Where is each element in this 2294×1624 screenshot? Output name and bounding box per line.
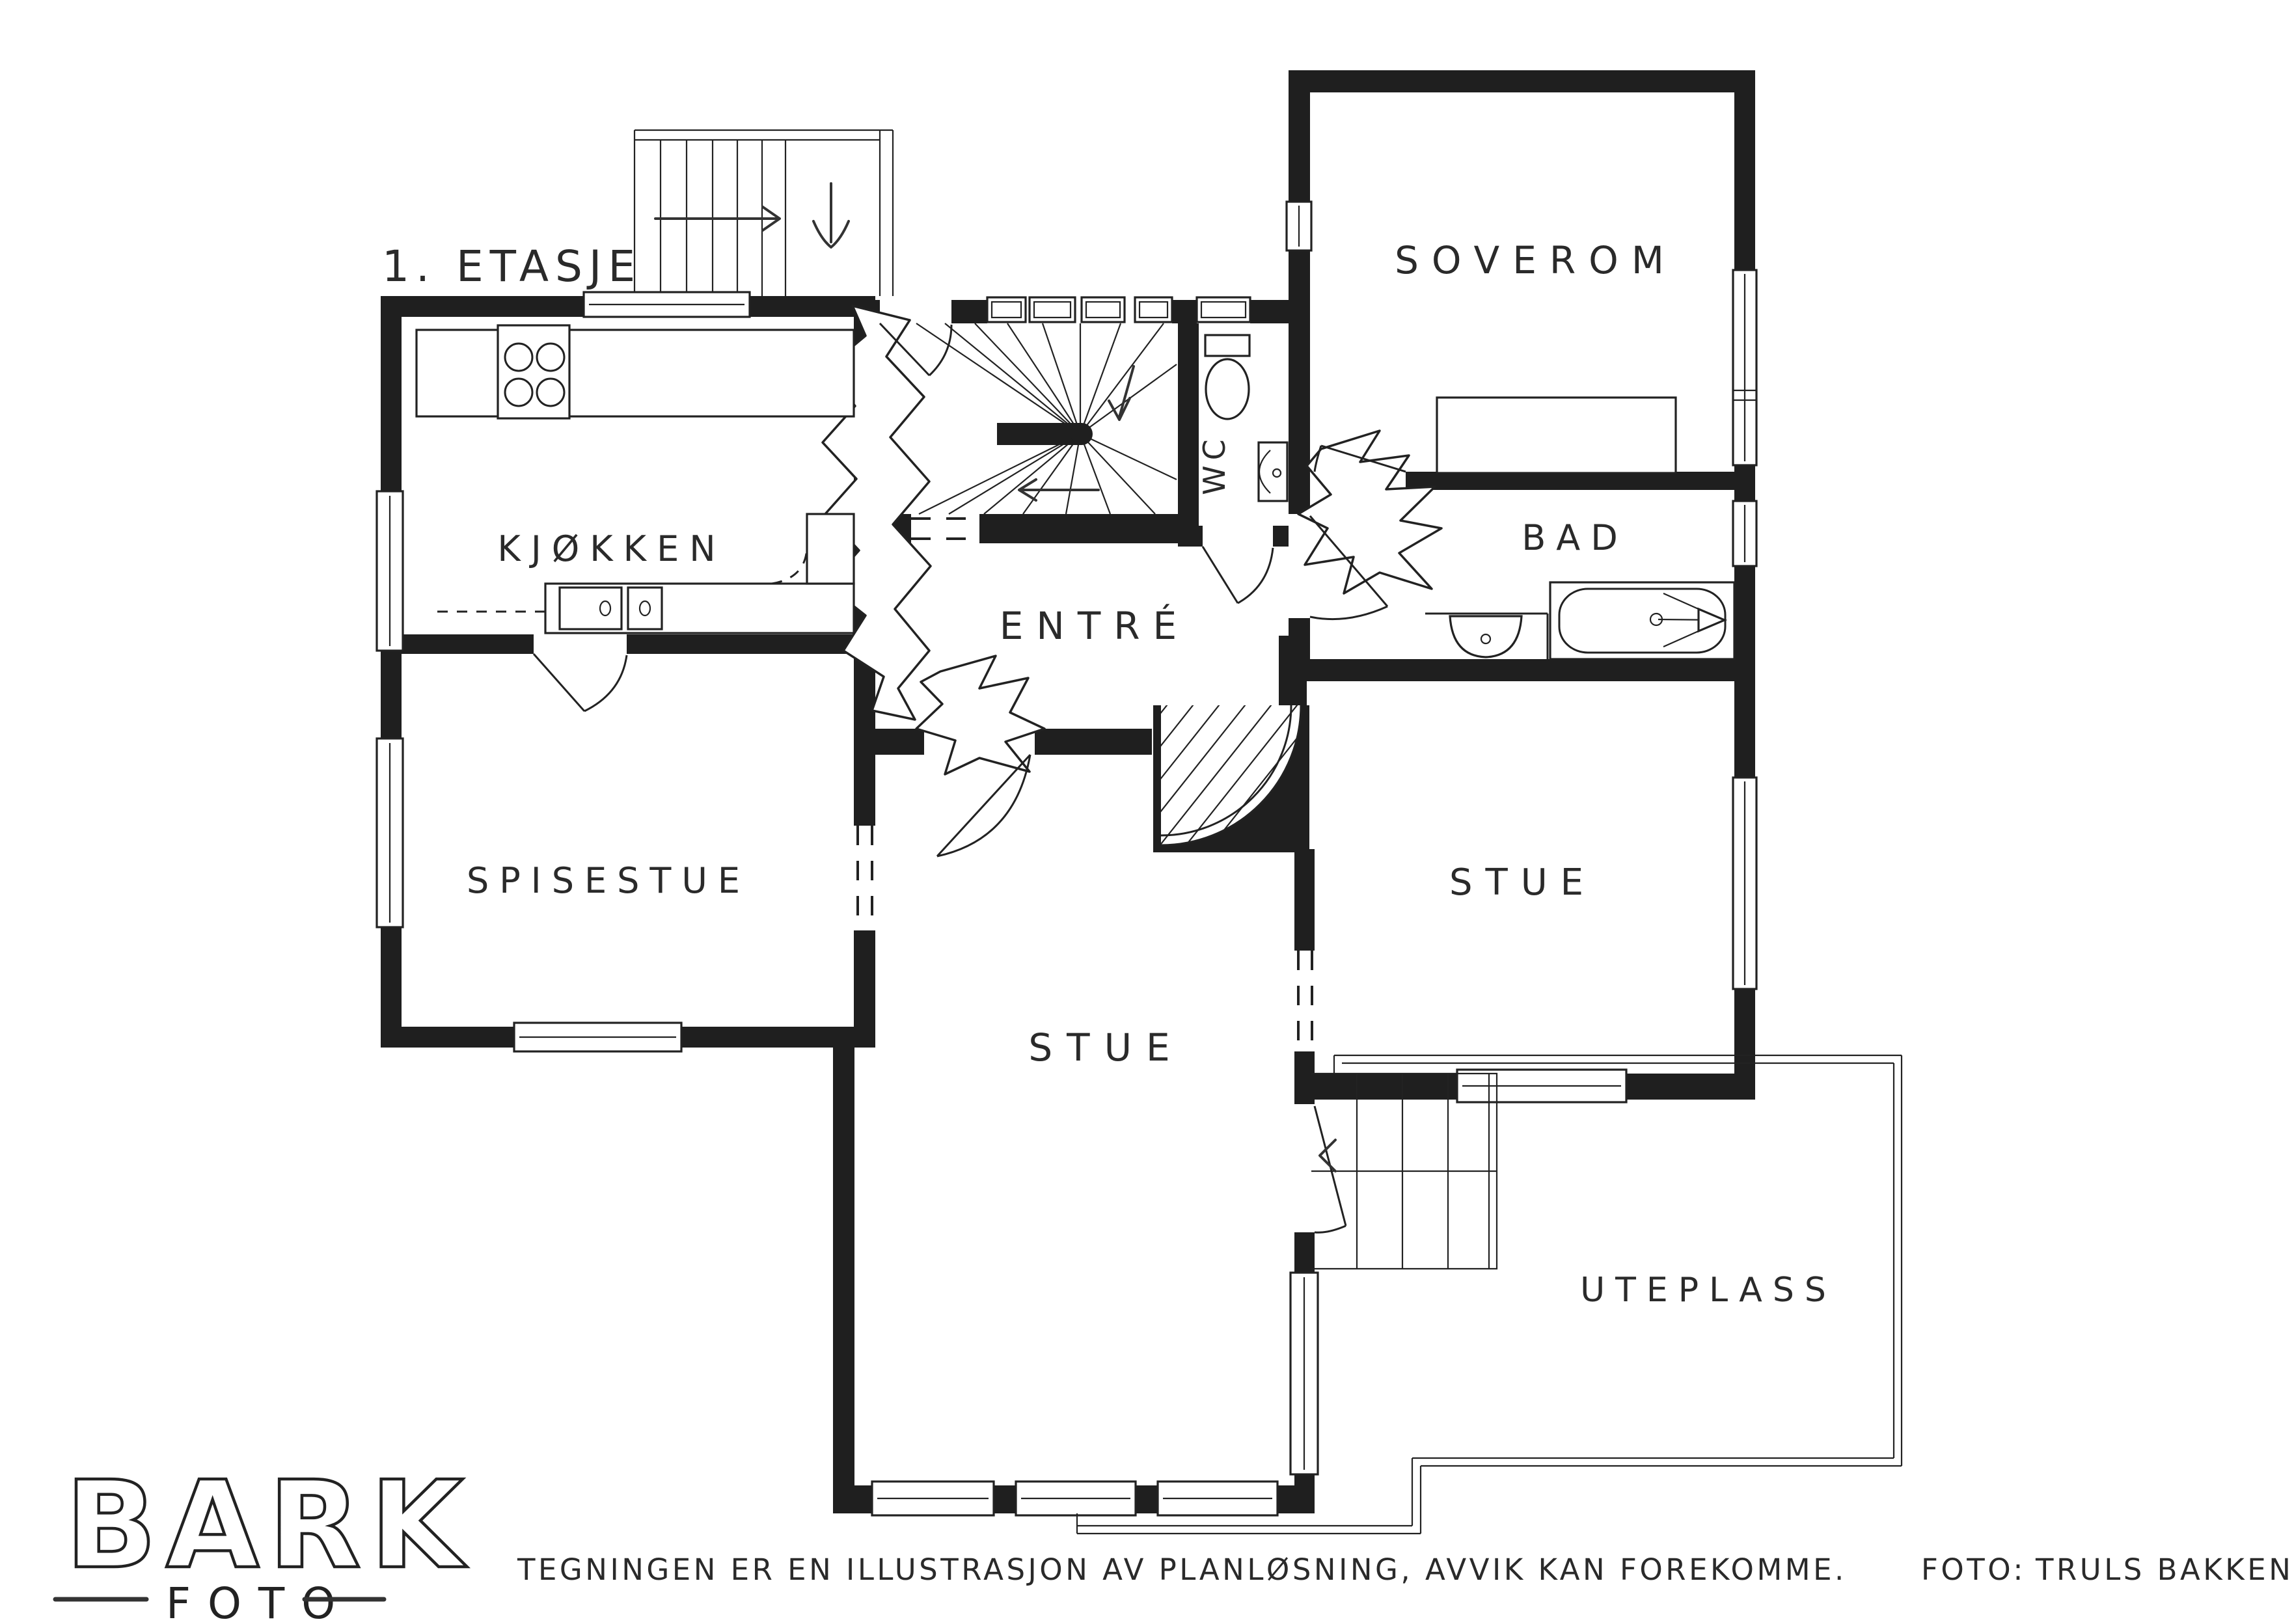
window	[1082, 297, 1125, 322]
kitchen-counter	[416, 330, 854, 416]
page-title: 1. ETASJE	[382, 241, 642, 291]
room-label-stue-main: STUE	[1028, 1025, 1184, 1070]
window	[377, 491, 403, 651]
door-kitchen-spisestue	[534, 654, 627, 711]
window	[1290, 1273, 1318, 1474]
window	[1016, 1482, 1136, 1515]
arrow-left-icon	[1019, 480, 1099, 500]
bed	[1437, 398, 1676, 473]
arrow-right-icon	[655, 207, 780, 230]
bad-sink	[1450, 616, 1522, 657]
opening-entre-corridor	[1298, 431, 1441, 593]
window	[584, 292, 750, 317]
stair-handrail	[997, 423, 1082, 445]
room-label-wc: WC	[1197, 434, 1232, 495]
toilet	[1205, 335, 1249, 356]
exterior-stair-top	[635, 130, 893, 296]
window	[514, 1023, 681, 1051]
window	[1197, 297, 1250, 322]
window	[1733, 270, 1756, 465]
footer: TEGNINGEN ER EN ILLUSTRASJON AV PLANLØSN…	[517, 1552, 2293, 1587]
footer-disclaimer: TEGNINGEN ER EN ILLUSTRASJON AV PLANLØSN…	[517, 1552, 1847, 1587]
interior-stair	[916, 323, 1177, 514]
floor-plan: 1. ETASJE KJØKKEN SPISESTUE ENTRÉ WC BAD…	[0, 0, 2294, 1624]
kitchen-sink	[560, 588, 621, 629]
opening-entre-stue	[916, 656, 1045, 774]
bathroom-fixtures	[1425, 582, 1734, 659]
window	[872, 1482, 994, 1515]
room-label-stue-right: STUE	[1449, 861, 1596, 904]
footer-photographer: TRULS BAKKEN	[2035, 1552, 2293, 1587]
footer-photo-label: FOTO:	[1921, 1552, 2026, 1587]
window	[377, 738, 403, 927]
window	[1457, 1070, 1626, 1102]
arrow-down-icon	[813, 183, 849, 247]
room-label-bad: BAD	[1522, 517, 1628, 558]
window	[987, 297, 1026, 322]
window	[1733, 778, 1756, 989]
logo-name: BARK	[65, 1455, 472, 1595]
door-wc	[1203, 547, 1273, 603]
window	[1030, 297, 1075, 322]
window	[1135, 297, 1172, 322]
room-label-entre: ENTRÉ	[1000, 603, 1190, 648]
kitchen-fixtures	[416, 325, 854, 633]
door-stue-uteplass	[1315, 1106, 1346, 1232]
room-label-soverom: SOVEROM	[1395, 238, 1677, 282]
window	[1287, 202, 1311, 250]
window	[1733, 501, 1756, 566]
room-label-spisestue: SPISESTUE	[467, 860, 750, 901]
room-label-kjokken: KJØKKEN	[497, 528, 726, 569]
logo: BARK FOTO	[55, 1455, 472, 1624]
arrow-down-icon	[1109, 366, 1134, 420]
window	[1158, 1482, 1277, 1515]
room-label-uteplass: UTEPLASS	[1580, 1271, 1837, 1310]
